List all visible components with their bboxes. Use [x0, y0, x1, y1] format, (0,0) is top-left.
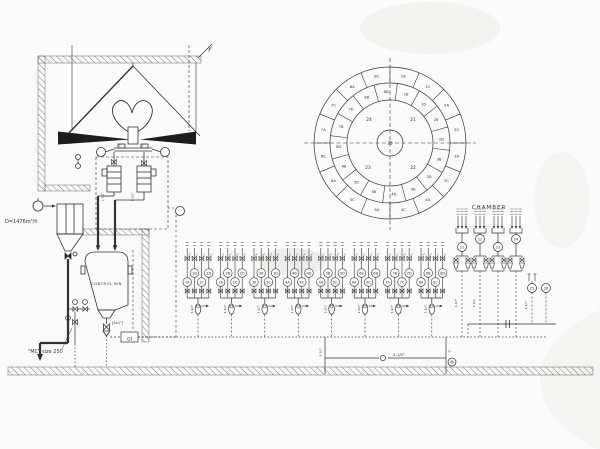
- valve-tag-label: 2B: [226, 271, 231, 275]
- chamber-title: CHAMBER: [472, 205, 507, 211]
- valve-group: 2A2B2C2D1-1/2": [216, 243, 246, 338]
- chamber-segment-divider: [411, 91, 419, 106]
- arrow-icon: [519, 226, 521, 229]
- inline-fitting-icon: [380, 355, 385, 360]
- chamber-segment-divider: [427, 164, 442, 172]
- chamber-segment-divider: [361, 73, 367, 88]
- arrow-icon: [501, 226, 503, 229]
- chamber-segment-divider: [433, 148, 450, 150]
- valve-group: 1A1B1C1D1-1/2": [183, 243, 213, 338]
- funnel-icon: [520, 263, 525, 268]
- filter-unit-2: [137, 160, 156, 192]
- valve-lever: [437, 254, 439, 256]
- chamber-middle-segment-label: 2B: [434, 118, 439, 122]
- arrow-icon: [465, 226, 467, 229]
- funnel-icon: [472, 263, 477, 268]
- chamber-outer-segment-label: 5C: [350, 197, 355, 202]
- arrow-icon: [373, 305, 376, 307]
- chamber-middle-segment-label: 5D: [354, 180, 359, 184]
- valve-lever: [244, 254, 246, 256]
- valve-lever: [229, 254, 231, 256]
- mc-size-label: "MC" size 250: [28, 349, 63, 355]
- chamber-middle-segment-label: 2D: [439, 137, 444, 141]
- valve-group: 6A6B6C6D1-1/2": [350, 243, 380, 338]
- valve-tag-label: 6B: [359, 271, 364, 275]
- pipe-size-label: 1-1/2": [454, 298, 458, 307]
- gauge-left-icon: [97, 148, 106, 157]
- arrow-icon: [440, 305, 443, 307]
- gi-label: GI: [127, 337, 132, 343]
- pipe-size-label: 2-1/2": [319, 347, 323, 357]
- valve-tag-label: 5A: [319, 280, 324, 284]
- valve-tag-label: 8A: [419, 280, 424, 284]
- arrow-icon: [493, 226, 495, 229]
- chamber-outer-segment-label: 4A: [425, 197, 430, 202]
- valve-lever: [203, 254, 205, 256]
- arrow-icon: [457, 226, 459, 229]
- chamber-segment-divider: [416, 177, 426, 190]
- chamber-middle-segment-label: 1B: [404, 92, 409, 96]
- chamber-segment-divider: [432, 185, 443, 196]
- chamber-segment-divider: [320, 166, 335, 172]
- valve-lever: [337, 254, 339, 256]
- ground-hatch: [8, 367, 593, 375]
- chamber-segment-divider: [431, 127, 447, 132]
- chamber-outer-segment-label: 8A: [350, 84, 355, 89]
- chamber-segment-divider: [395, 83, 397, 100]
- chamber-segment-divider: [320, 114, 335, 120]
- valve-icon: [73, 307, 77, 311]
- chamber-segment-divider: [361, 198, 367, 213]
- arrow-icon: [515, 226, 517, 229]
- valve-icon: [83, 307, 87, 311]
- valve-icon: [484, 258, 488, 262]
- valve-tag-label: 2D: [240, 271, 245, 275]
- valve-lever: [222, 254, 224, 256]
- valve-lever: [370, 254, 372, 256]
- chamber-outer-segment-label: 1C: [425, 84, 430, 89]
- station: 21: [454, 209, 471, 337]
- chamber-outer-segment-label: 4C: [401, 207, 406, 212]
- chamber-quadrant-label: 24: [366, 117, 372, 123]
- wall-axis-mark: y: [198, 44, 212, 58]
- arrow-icon: [406, 305, 409, 307]
- valve-lever: [363, 254, 365, 256]
- valve-icon: [104, 324, 110, 330]
- funnel-icon: [454, 263, 459, 268]
- wall-axis-label: y: [207, 45, 212, 52]
- valve-lever: [210, 254, 212, 256]
- chamber-middle-segment-label: 1D: [421, 102, 426, 106]
- valve-lever: [396, 254, 398, 256]
- valve-icon: [490, 258, 494, 262]
- valve-tag-label: 2A: [218, 280, 223, 284]
- four-by-label: [4x1"]: [112, 321, 124, 325]
- hopper: [58, 45, 200, 169]
- tap-circle-icon: [76, 164, 81, 169]
- injector-icon: [229, 304, 235, 314]
- valve-tag-label: 7D: [407, 271, 412, 275]
- hopper-leg-right: [133, 66, 200, 136]
- chamber-segment-divider: [336, 89, 347, 100]
- chamber-segment-divider: [374, 85, 379, 101]
- chamber-middle-segment-label: 3D: [426, 175, 431, 179]
- valve-group: 5A5B5C5D1-1/2": [317, 243, 347, 338]
- chamber-quadrant-label: 23: [365, 165, 371, 171]
- chamber-middle-segment-label: 4D: [391, 193, 396, 197]
- valve-group: 7A7B7C7D1-1/2": [383, 243, 413, 338]
- chamber-middle-segment-label: 4B: [411, 187, 416, 191]
- pipe-size-label: 1-1/2": [390, 304, 394, 313]
- valve-icon: [466, 258, 470, 262]
- aux-tag-label: 26: [544, 286, 549, 290]
- diagram-canvas: y 1" 1": [0, 0, 600, 449]
- valve-tag-label: 7B: [393, 271, 398, 275]
- station-tag-label: 21: [460, 245, 465, 249]
- arrow-icon: [497, 226, 499, 229]
- chamber-segment-divider: [353, 96, 363, 109]
- valve-tag-label: 1A: [185, 280, 190, 284]
- chamber-segment-divider: [338, 113, 353, 121]
- arrow-icon: [461, 226, 463, 229]
- chamber-outer-segment-label: 7A: [321, 127, 326, 132]
- valve-tag-label: 6D: [373, 271, 378, 275]
- arrow-icon: [273, 305, 276, 307]
- valve-lever: [404, 254, 406, 256]
- funnel-icon: [484, 263, 489, 268]
- valve-group: 8A8B8C8D1-1/2": [417, 243, 447, 338]
- valve-lever: [237, 254, 239, 256]
- valve-icon: [454, 258, 458, 262]
- chamber-segment-divider: [401, 184, 406, 200]
- wall-left: [38, 56, 45, 191]
- valve-tag-label: 3A: [252, 280, 257, 284]
- injector-icon: [362, 304, 368, 314]
- wall-top: [38, 56, 201, 63]
- injector-icon: [396, 304, 402, 314]
- valve-lever: [322, 254, 324, 256]
- valve-icon: [508, 258, 512, 262]
- valve-tag-label: 5C: [333, 280, 338, 284]
- pipe-size-label: 1-1/2": [472, 298, 476, 307]
- arrow-icon: [306, 305, 309, 307]
- pipe-size-label: 1-1/2": [257, 304, 261, 313]
- valve-tag-label: 8C: [433, 280, 438, 284]
- chamber-segment-divider: [432, 89, 443, 100]
- valve-tag-label: 5B: [326, 271, 331, 275]
- gauge-right-icon: [161, 148, 170, 157]
- instrument-circle-icon: [176, 207, 185, 216]
- hopper-outlet: [128, 127, 138, 144]
- mc-valve-cluster: [62, 300, 90, 367]
- feed-cone: [57, 234, 83, 251]
- injector-icon: [195, 304, 201, 314]
- pipe-size-label: 1-1/2": [290, 304, 294, 313]
- valve-tag-label: 2C: [233, 280, 238, 284]
- valve-tag-label: 7C: [400, 280, 405, 284]
- chamber-middle-segment-label: 5B: [371, 190, 376, 194]
- station: 22: [472, 209, 489, 337]
- wall-mid-vertical: [142, 229, 149, 342]
- chamber-segment-divider: [336, 185, 347, 196]
- flow-gauge-icon: [33, 201, 43, 211]
- valve-tag-label: 4B: [292, 271, 297, 275]
- chamber-middle-segment-label: 7D: [348, 108, 353, 112]
- valve-lever: [196, 254, 198, 256]
- chamber-segment-divider: [360, 180, 368, 195]
- chamber-outer-segment-label: 3A: [454, 154, 459, 159]
- pipe-size-label: 1-1/2": [101, 192, 105, 202]
- chamber-quadrant-label: 21: [410, 117, 416, 123]
- valve-icon: [472, 258, 476, 262]
- pipe-size-label: 1-1/2": [424, 304, 428, 313]
- valve-tag-label: 4D: [307, 271, 312, 275]
- station-tag-label: 23: [496, 245, 501, 249]
- walls: [8, 56, 593, 375]
- hopper-wedge-right: [140, 132, 196, 145]
- injector-icon: [429, 304, 435, 314]
- injector-icon: [262, 304, 268, 314]
- chamber-outer-segment-label: 2C: [454, 127, 459, 132]
- valve-tag-label: 6C: [366, 280, 371, 284]
- chamber-segment-divider: [413, 198, 419, 213]
- scan-artifacts: [258, 2, 600, 449]
- valve-tag-label: 4A: [285, 280, 290, 284]
- valve-tag-label: 3B: [259, 271, 264, 275]
- station: 24: [508, 209, 525, 337]
- chamber-center-label: 25: [387, 141, 393, 146]
- arrow-icon: [340, 305, 343, 307]
- pipe-size-label: 1-1/2": [524, 300, 528, 309]
- chamber-segment-divider: [343, 169, 356, 179]
- chamber-outer-segment-label: 7C: [331, 103, 336, 108]
- valve-tag-label: 1C: [199, 280, 204, 284]
- pipe-size-label: 1-1/2": [190, 304, 194, 313]
- valve-lever: [356, 254, 358, 256]
- funnel-icon: [502, 263, 507, 268]
- valve-lever: [411, 254, 413, 256]
- arrow-icon: [511, 226, 513, 229]
- injector-icon: [295, 304, 301, 314]
- chamber-segment-divider: [332, 154, 348, 159]
- valve-lever: [389, 254, 391, 256]
- valve-lever: [189, 254, 191, 256]
- funnel-icon: [508, 263, 513, 268]
- valve-icon: [520, 258, 524, 262]
- valve-tag-label: 3D: [273, 271, 278, 275]
- funnel-icon: [490, 263, 495, 268]
- valve-tag-label: 4C: [300, 280, 305, 284]
- valve-tag-label: 8D: [440, 271, 445, 275]
- arrow-icon: [206, 305, 209, 307]
- valve-lever: [377, 254, 379, 256]
- valve-lever: [430, 254, 432, 256]
- valve-lever: [344, 254, 346, 256]
- arrow-icon: [479, 226, 481, 229]
- control-bin-label: CONTROL BIN: [91, 281, 122, 286]
- valve-tag-label: 5D: [340, 271, 345, 275]
- pipe-size-label: 1-1/2": [223, 304, 227, 313]
- chamber-middle-segment-label: 6D: [336, 145, 341, 149]
- valve-lever: [423, 254, 425, 256]
- chamber-outer-segment-label: 2A: [444, 103, 449, 108]
- valve-lever: [256, 254, 258, 256]
- arrow-icon: [475, 226, 477, 229]
- chamber-quadrant-label: 22: [410, 165, 416, 171]
- pipe-size-label: 1-1/2": [131, 192, 135, 202]
- chamber-outer-segment-label: 3C: [444, 178, 449, 183]
- pipe-size-label: 2-1/2": [393, 352, 405, 357]
- control-bin: [81, 245, 133, 367]
- chamber-outer-segment-label: 6C: [321, 154, 326, 159]
- chamber-middle-segment-label: 8B: [364, 95, 369, 99]
- injector-icon: [329, 304, 335, 314]
- chamber-segment-divider: [424, 106, 437, 116]
- valve-icon: [65, 253, 71, 259]
- pipe-size-label: 2": [448, 349, 452, 353]
- arrow-icon: [483, 226, 485, 229]
- valve-lever: [444, 254, 446, 256]
- chamber-middle-segment-label: 3B: [437, 157, 442, 161]
- funnel-icon: [466, 263, 471, 268]
- chamber: 1A1C2A2C3A3C4A4C5A5C6A6C7A7C8A8C1B1D2B2D…: [304, 58, 476, 230]
- chamber-outer-segment-label: 5A: [374, 207, 379, 212]
- valve-tag-label: 8B: [426, 271, 431, 275]
- chamber-outer-segment-label: 8C: [374, 74, 379, 79]
- arrow-icon: [239, 305, 242, 307]
- chamber-middle-segment-label: 8D: [384, 90, 389, 94]
- valve-tag-label: 3C: [266, 280, 271, 284]
- pipe-size-label: 1-1/2": [323, 304, 327, 313]
- chamber-outer-segment-label: 1A: [401, 74, 406, 79]
- flow-rate-label: D=1476m³/h: [5, 219, 38, 225]
- chamber-middle-segment-label: 7B: [339, 125, 344, 129]
- chamber-segment-divider: [445, 166, 460, 172]
- chamber-outer-segment-label: 6A: [331, 178, 336, 183]
- wall-left-foot: [45, 185, 90, 191]
- valve-lever: [330, 254, 332, 256]
- chamber-segment-divider: [383, 186, 385, 203]
- chamber-segment-divider: [445, 114, 460, 120]
- tap-circle-icon: [76, 155, 81, 160]
- feed-filter-box: [57, 204, 83, 234]
- station: 23: [490, 209, 507, 337]
- aux-tag-label: 25: [530, 286, 535, 290]
- chamber-middle-segment-label: 6B: [342, 164, 347, 168]
- valve-icon: [502, 258, 506, 262]
- scanned-piping-diagram: y 1" 1": [0, 0, 600, 449]
- pipe-size-label: 1-1/2": [357, 304, 361, 313]
- valve-tag-label: 6A: [352, 280, 357, 284]
- station-tag-label: 24: [514, 237, 519, 241]
- valve-tag-label: 1D: [206, 271, 211, 275]
- cyclone-feeder: [33, 198, 83, 361]
- station-tag-label: 22: [478, 237, 483, 241]
- chamber-segment-divider: [330, 136, 347, 138]
- valve-tag-label: 1B: [192, 271, 197, 275]
- chamber-segment-divider: [413, 73, 419, 88]
- filter-unit-1: [102, 160, 121, 193]
- valve-tag-label: 7A: [385, 280, 390, 284]
